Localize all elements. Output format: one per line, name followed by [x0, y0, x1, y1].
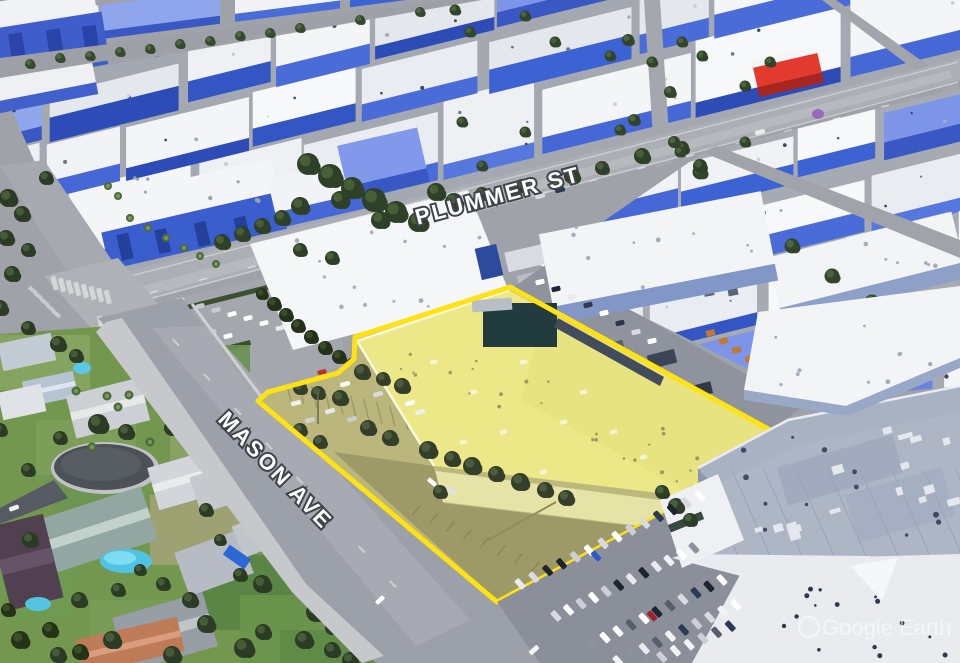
svg-text:Google Earth: Google Earth [822, 615, 952, 640]
